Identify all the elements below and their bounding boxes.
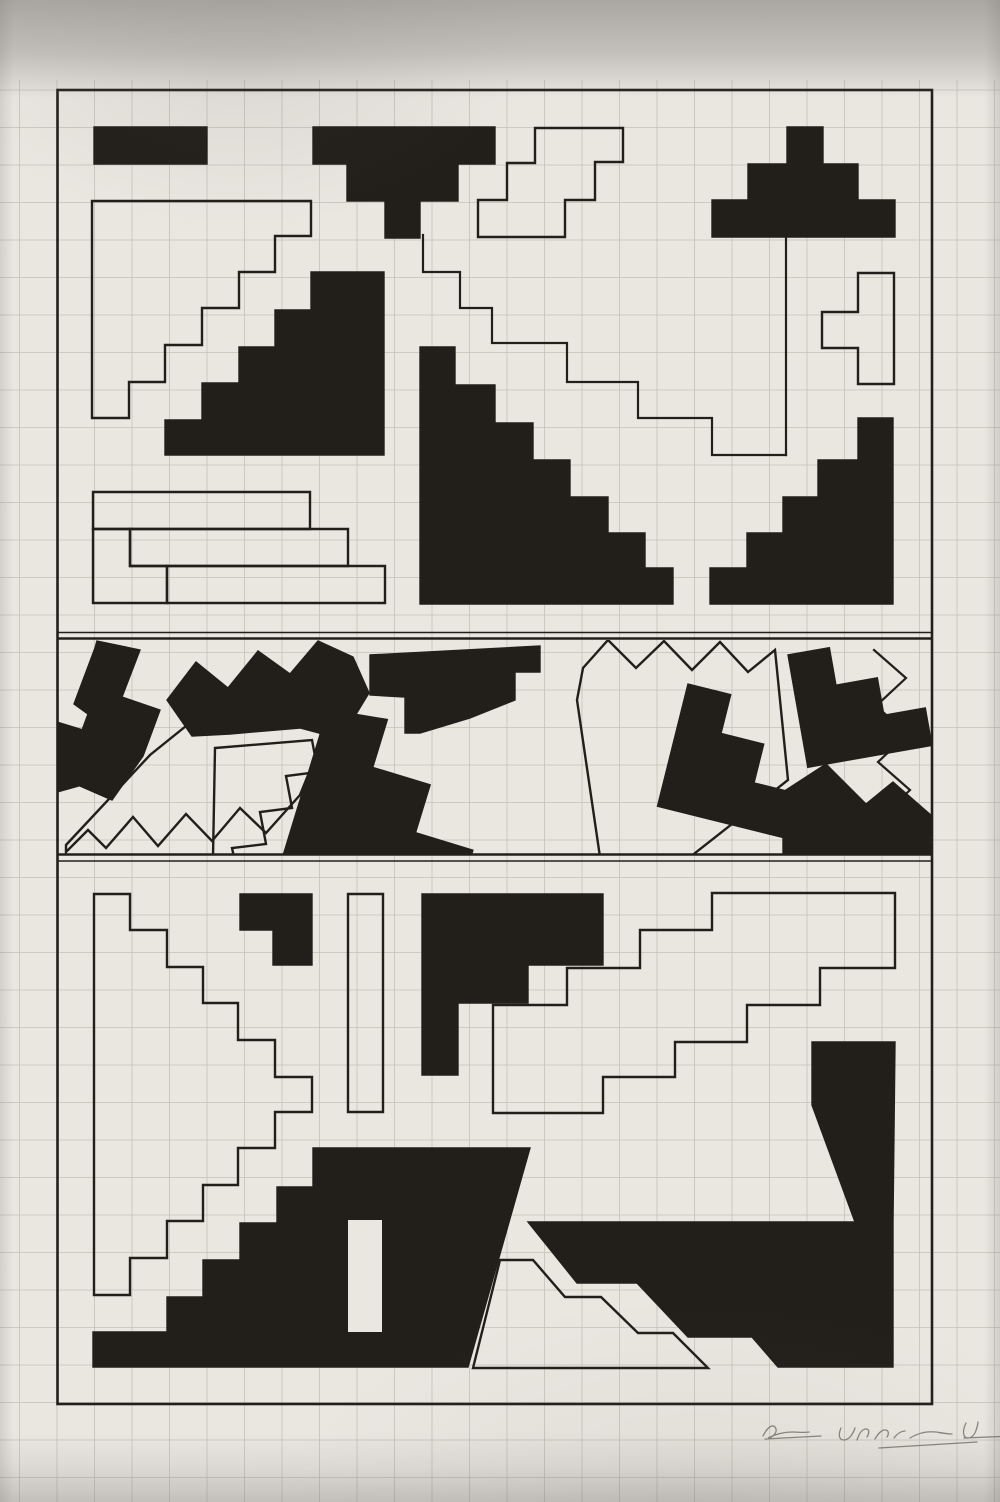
black-valley-stair-left [420,347,673,604]
black-staircase-left [165,272,384,455]
outline-bar-1 [93,492,310,529]
black-pyramid-right [712,127,895,237]
artwork-photo [0,0,1000,1502]
white-slot-notch [348,1220,382,1332]
bottom-panel [93,893,895,1368]
outline-bar-3 [167,566,385,603]
black-diagonal-mass-right [528,1042,895,1367]
outline-tall-rect [348,894,383,1112]
outline-plus-step-right [822,273,894,384]
outline-step-band-center [478,128,623,237]
black-inverted-pyramid [313,127,495,238]
black-big-gamma [422,894,603,1075]
middle-band [57,633,932,906]
top-panel [92,127,895,604]
black-small-L [240,894,312,965]
black-valley-stair-right [710,418,893,604]
artist-signature [763,1422,1000,1448]
outline-bar-2 [130,529,348,566]
black-bar-top-left [94,127,207,164]
artwork-drawing [0,0,1000,1502]
black-wedge-slab [370,646,540,733]
black-stair-upper-right [788,633,932,767]
black-mass-lower-right [783,764,932,855]
